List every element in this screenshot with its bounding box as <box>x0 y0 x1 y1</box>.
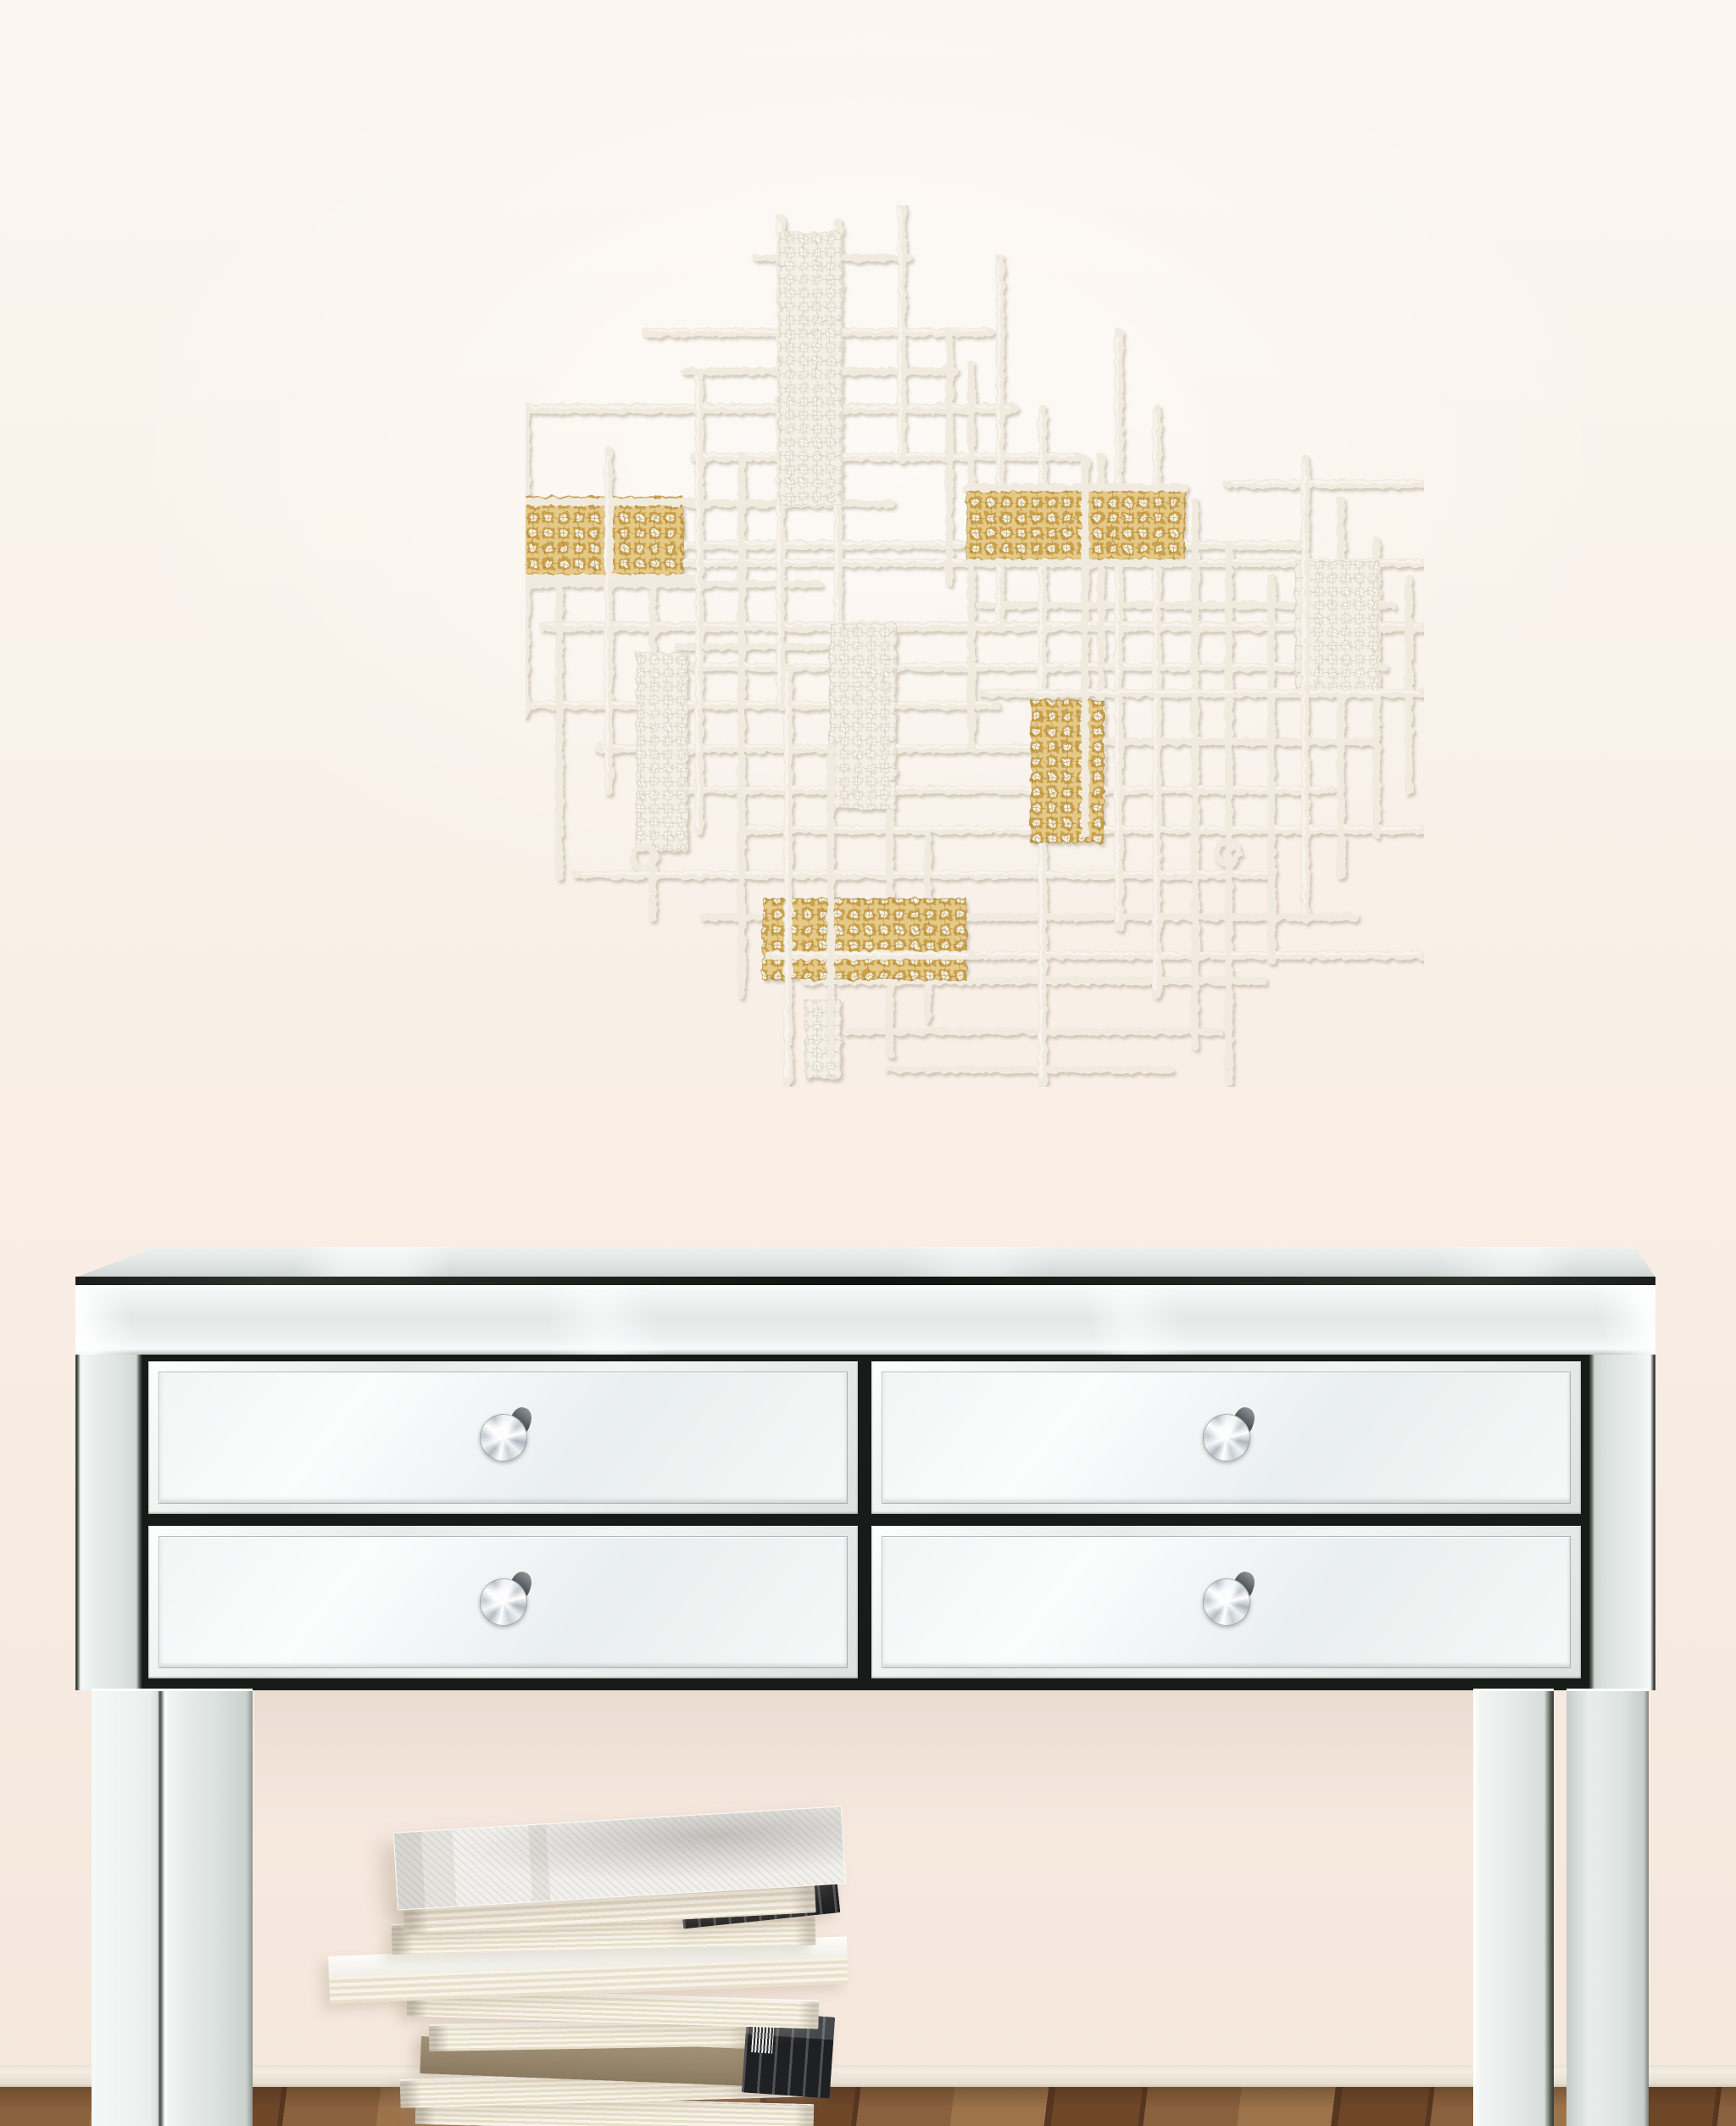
table-top-surface <box>75 1247 1655 1277</box>
crystal-knob <box>478 1577 529 1628</box>
table-left-stile <box>75 1355 142 1690</box>
crystal-knob <box>478 1412 529 1463</box>
drawer-front <box>159 1537 847 1667</box>
wall-sculpture <box>526 205 1424 1087</box>
sculpture-white-mesh-panel <box>779 232 842 505</box>
table-apron <box>75 1285 1655 1356</box>
drawer-bottom-left <box>148 1526 858 1678</box>
drawer-bottom-right <box>871 1526 1581 1678</box>
knob-crystal-gem <box>480 1414 527 1461</box>
sculpture-white-mesh-panel <box>830 624 896 809</box>
sculpture-gold-mesh-panel <box>1031 700 1104 843</box>
drawer-top-right <box>871 1361 1581 1514</box>
table-top-mirror-edge <box>75 1277 1655 1285</box>
knob-crystal-gem <box>1203 1578 1250 1626</box>
table-right-stile <box>1589 1355 1655 1690</box>
crystal-knob <box>1201 1412 1252 1463</box>
drawer-front <box>882 1537 1570 1667</box>
sculpture-gold-mesh-panel <box>763 899 966 980</box>
sculpture-white-mesh-panel <box>637 653 687 851</box>
drawer-top-left <box>148 1361 858 1514</box>
crystal-knob <box>1201 1577 1252 1628</box>
room-scene <box>0 0 1736 2126</box>
knob-crystal-gem <box>1203 1414 1250 1461</box>
table-ambient-shadow <box>254 1689 1475 1833</box>
magazine-stack <box>381 1814 856 2126</box>
sculpture-white-mesh-panel <box>805 1000 841 1078</box>
table-right-front-leg <box>1473 1689 1554 2126</box>
table-right-rear-leg <box>1566 1689 1649 2126</box>
drawer-front <box>159 1372 847 1503</box>
knob-crystal-gem <box>480 1578 527 1626</box>
sculpture-hanging-loop <box>633 847 655 869</box>
table-left-legs <box>92 1689 253 2126</box>
sculpture-gold-mesh-panel <box>966 487 1185 564</box>
drawer-front <box>882 1372 1570 1503</box>
